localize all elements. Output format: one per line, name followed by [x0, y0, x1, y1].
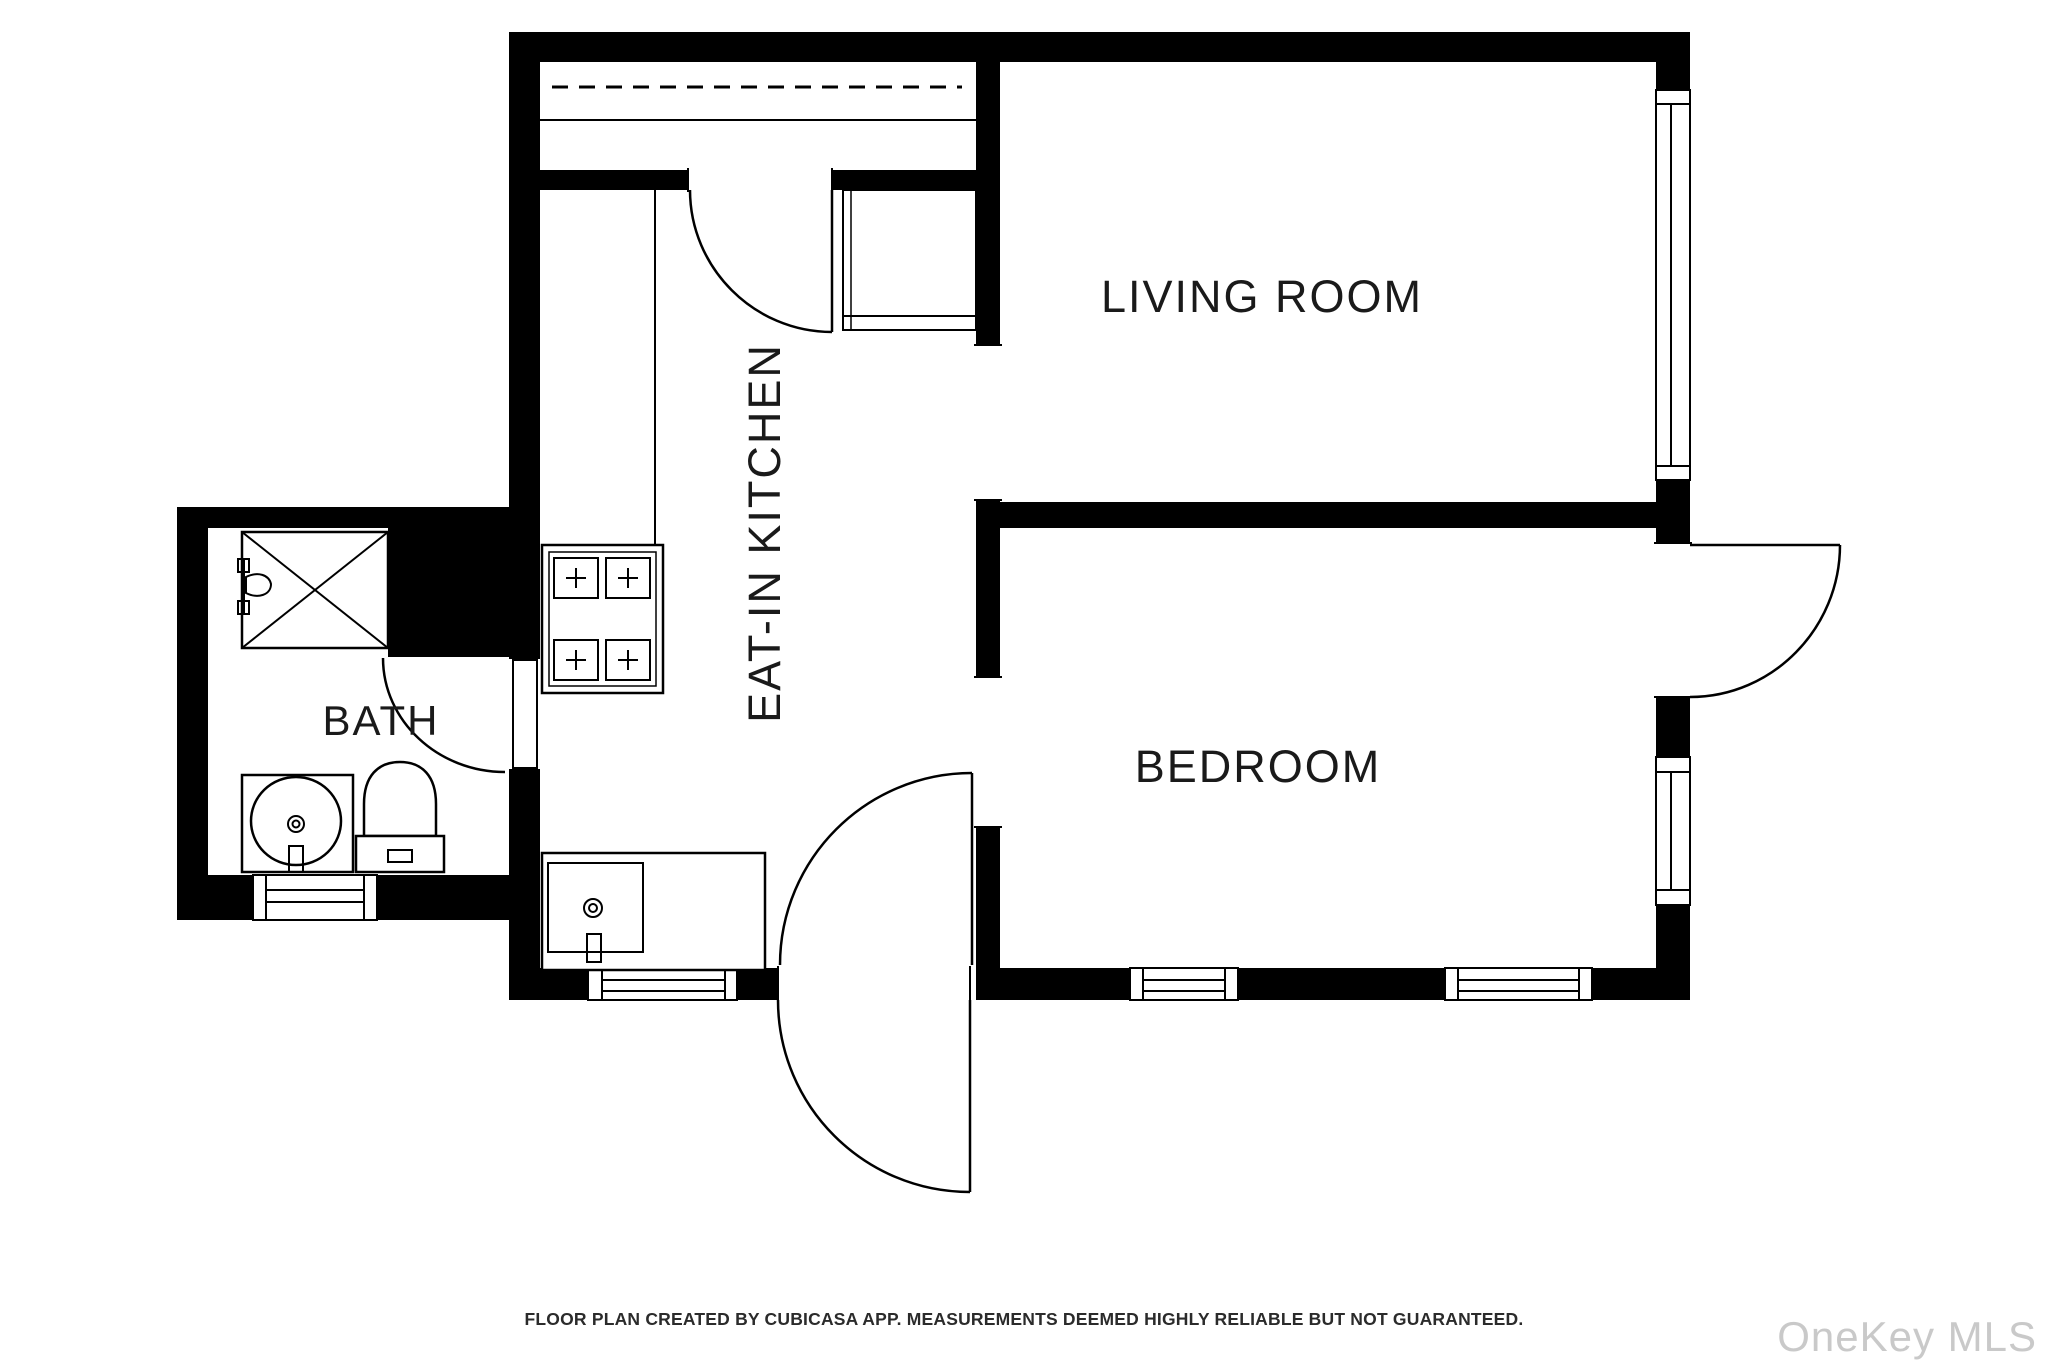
wall-bottom-kitchen-b: [737, 968, 778, 1000]
label-kitchen: EAT-IN KITCHEN: [739, 343, 790, 723]
kitchen-sink: [542, 853, 765, 970]
bedroom-bottom-window-2: [1445, 968, 1592, 1000]
wall-right-mid1: [1656, 480, 1690, 543]
floor-plan-page: LIVING ROOM BEDROOM EAT-IN KITCHEN BATH …: [0, 0, 2048, 1365]
kitchen-door: [688, 168, 832, 332]
bathroom-sink: [242, 775, 353, 872]
wall-bath-bottom-left: [208, 875, 253, 920]
label-living-room: LIVING ROOM: [1101, 271, 1423, 322]
wall-right-upper: [1656, 32, 1690, 90]
wall-bottom-bedroom-b: [1238, 968, 1445, 1000]
wall-kitchen-left-lower: [509, 770, 540, 1000]
wall-bottom-kitchen-a: [540, 968, 588, 1000]
wall-plumbing-block: [388, 507, 509, 657]
wall-divider-mid: [976, 500, 1000, 677]
wall-bottom-bedroom-c: [1592, 968, 1690, 1000]
bath-window: [253, 875, 377, 920]
shower: [238, 532, 388, 648]
bedroom-bottom-window-1: [1130, 968, 1238, 1000]
bedroom-door: [780, 677, 1002, 965]
entry-door: [778, 966, 970, 1192]
wall-bath-left: [177, 507, 208, 920]
kitchen-living-passage: [974, 345, 1002, 500]
stove: [542, 545, 663, 693]
closet-rail: [540, 87, 976, 120]
wall-right-mid2: [1656, 697, 1690, 757]
wall-living-bedroom-divider: [1000, 502, 1656, 528]
wall-bottom-bedroom-a: [1000, 968, 1130, 1000]
wall-kitchen-left-upper: [509, 32, 540, 658]
bedroom-right-window: [1656, 757, 1690, 905]
wall-closet-right: [832, 170, 976, 190]
pantry-closet: [843, 190, 976, 330]
wall-bath-bottom-right: [377, 875, 509, 920]
living-room-side-door: [1654, 543, 1840, 697]
wall-divider-lower: [976, 827, 1000, 1000]
kitchen-window: [588, 968, 737, 1000]
wall-divider-upper: [976, 62, 1000, 345]
toilet: [356, 762, 444, 872]
footer-disclaimer: FLOOR PLAN CREATED BY CUBICASA APP. MEAS…: [525, 1309, 1524, 1329]
floor-plan-drawing: LIVING ROOM BEDROOM EAT-IN KITCHEN BATH …: [0, 0, 2048, 1365]
wall-top: [509, 32, 1690, 62]
living-room-window: [1656, 90, 1690, 480]
label-bedroom: BEDROOM: [1135, 741, 1382, 792]
wall-closet-left: [540, 170, 688, 190]
watermark-onekey-mls: OneKey MLS: [1777, 1313, 2037, 1360]
label-bath: BATH: [323, 697, 440, 744]
